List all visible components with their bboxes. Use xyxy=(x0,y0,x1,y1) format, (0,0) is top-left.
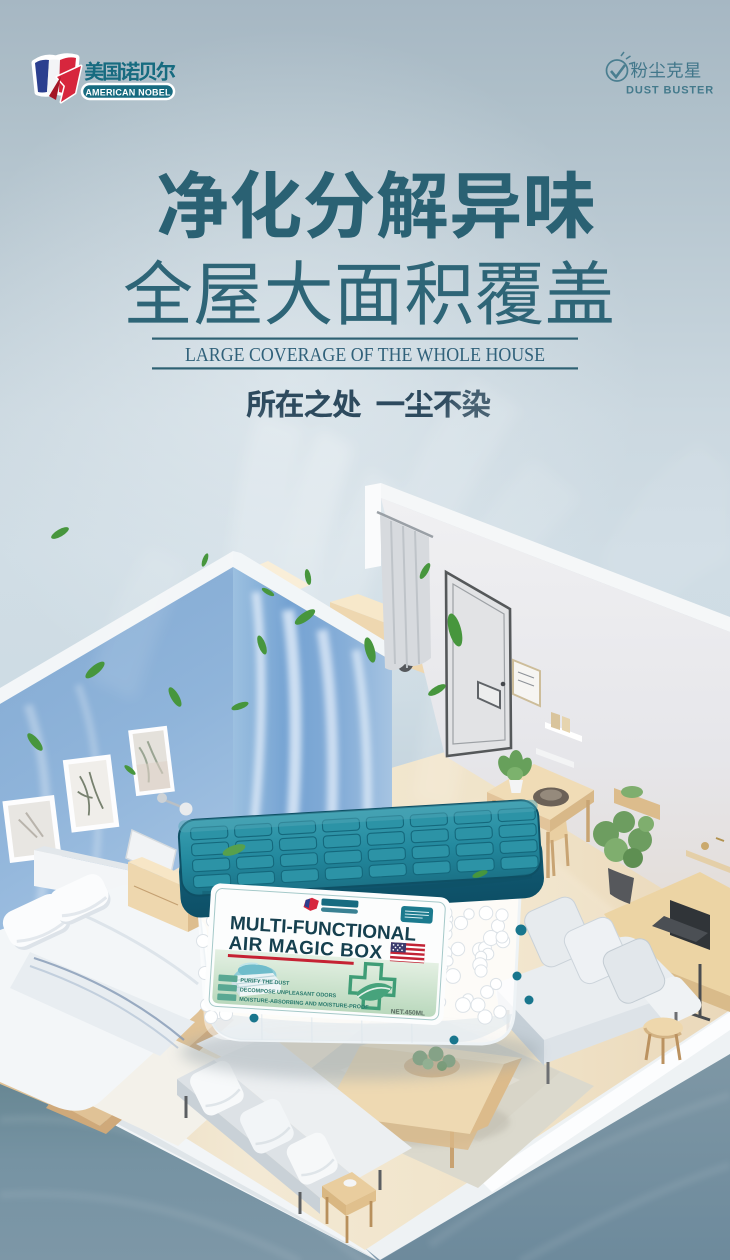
svg-text:LARGE COVERAGE OF THE WHOLE HO: LARGE COVERAGE OF THE WHOLE HOUSE xyxy=(185,344,545,366)
svg-text:DUST BUSTER: DUST BUSTER xyxy=(626,85,714,97)
svg-text:AMERICAN NOBEL: AMERICAN NOBEL xyxy=(85,88,171,98)
